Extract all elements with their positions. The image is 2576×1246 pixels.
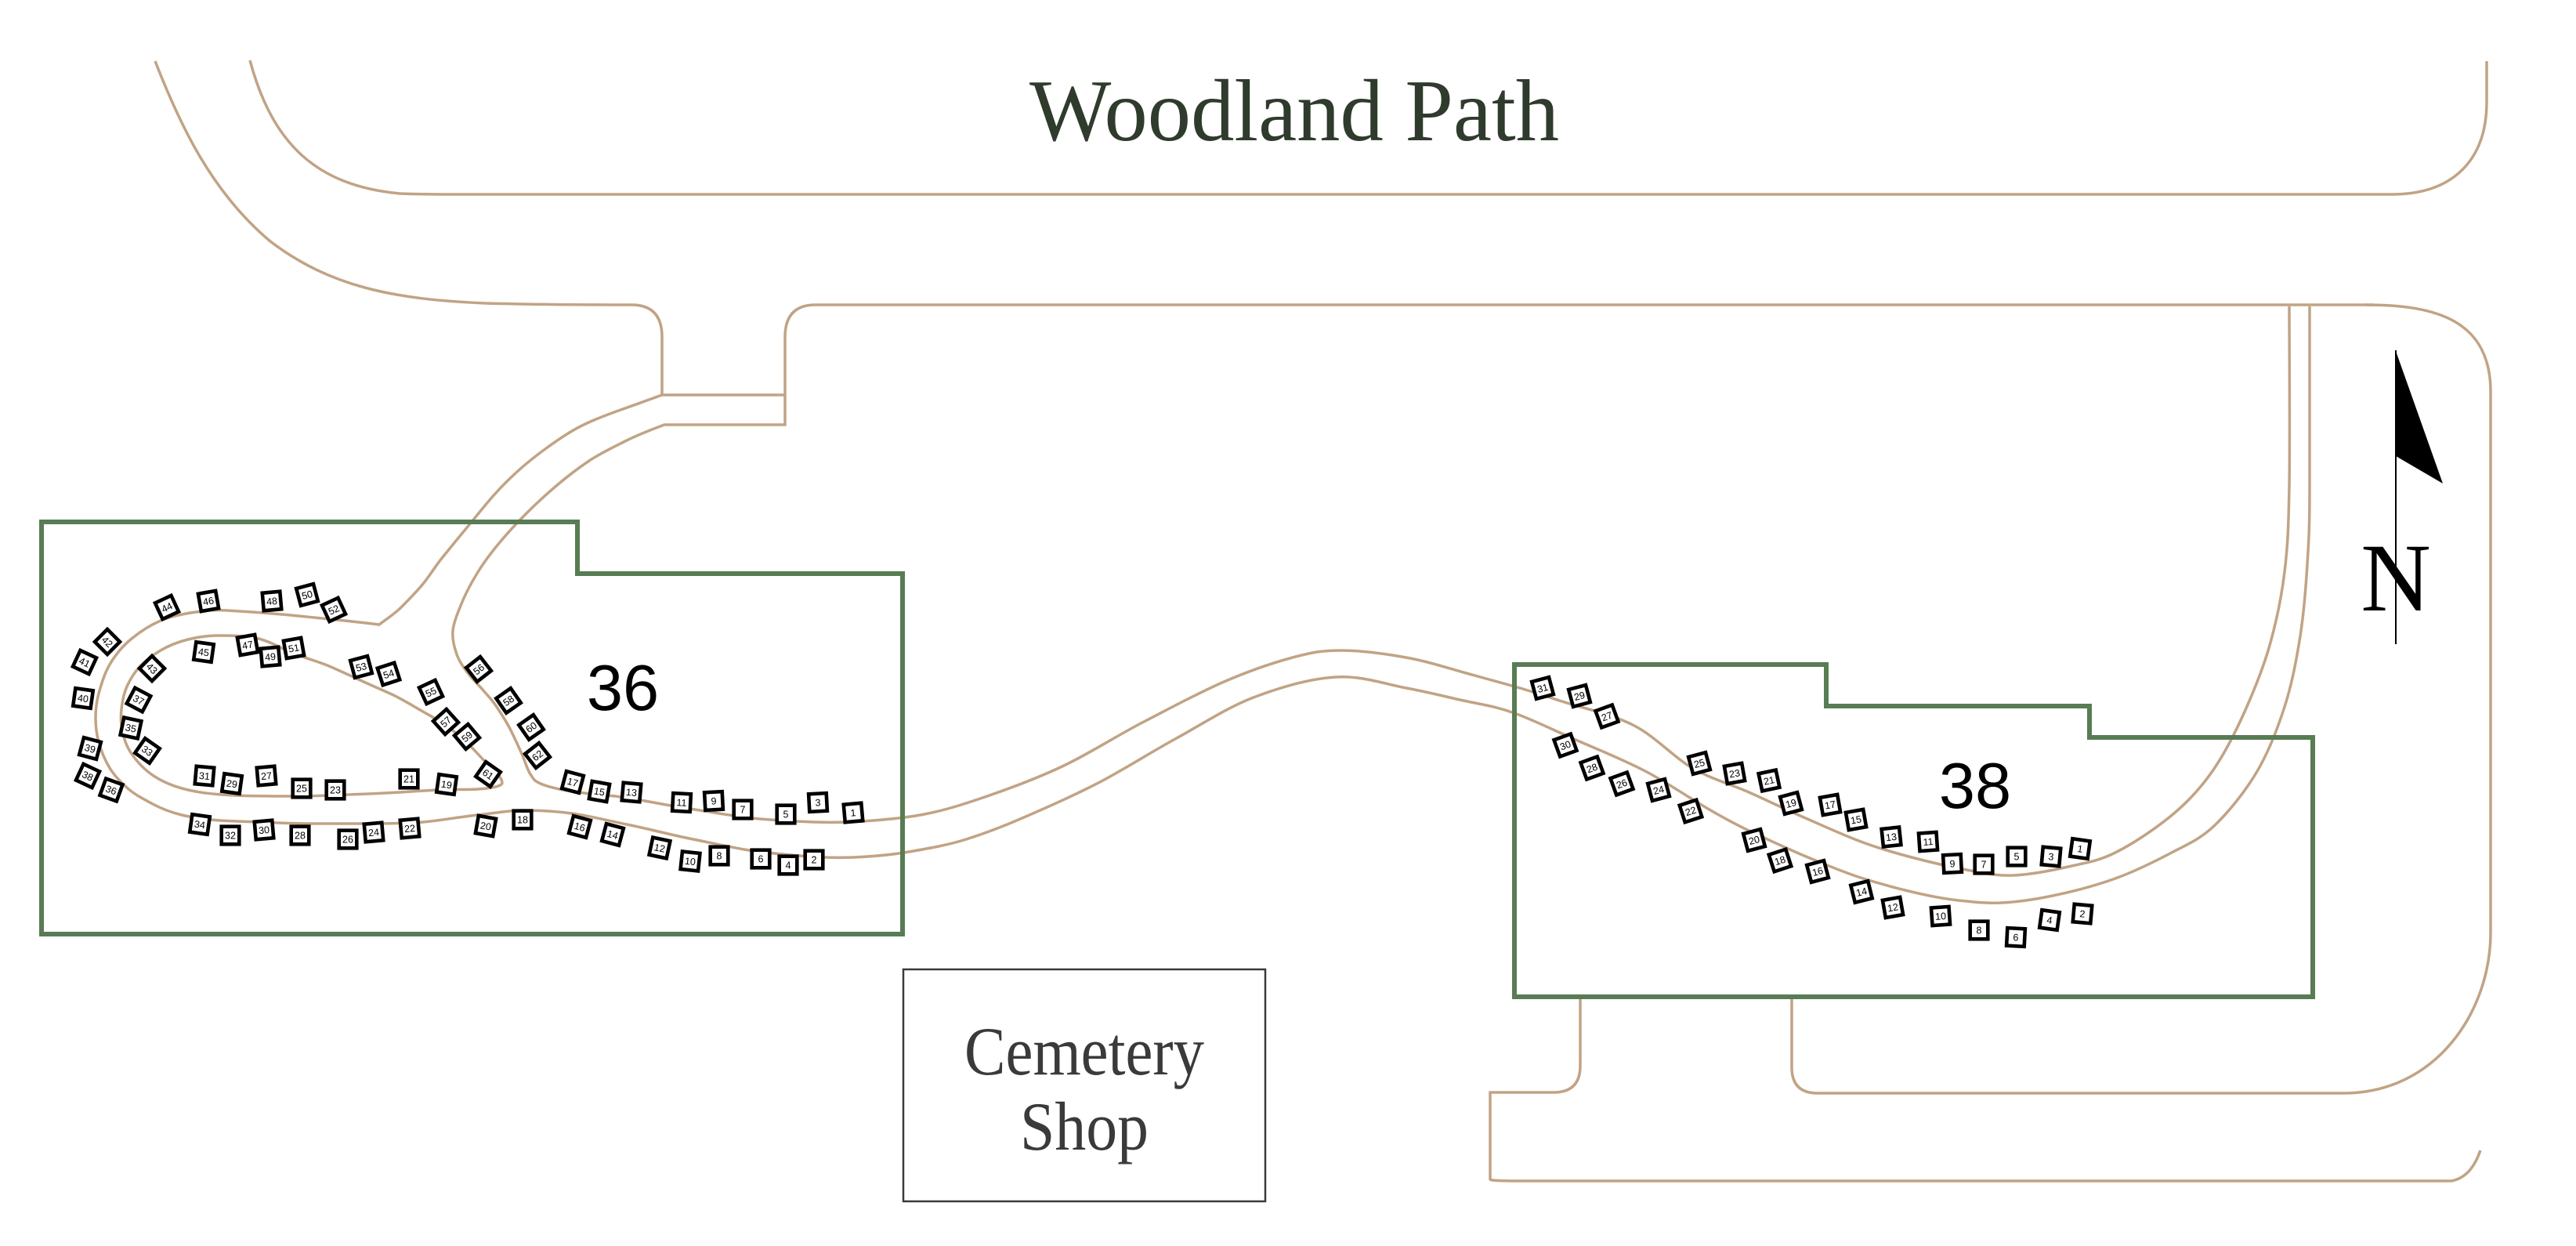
svg-text:2: 2 xyxy=(812,855,817,866)
svg-text:4: 4 xyxy=(786,860,791,871)
svg-text:31: 31 xyxy=(198,770,210,782)
svg-text:12: 12 xyxy=(653,842,667,855)
svg-text:7: 7 xyxy=(740,805,746,816)
svg-text:8: 8 xyxy=(717,851,722,862)
svg-text:Shop: Shop xyxy=(1020,1089,1149,1165)
svg-text:Woodland Path: Woodland Path xyxy=(1029,63,1559,160)
svg-text:49: 49 xyxy=(265,651,277,663)
svg-text:13: 13 xyxy=(625,787,637,799)
svg-text:3: 3 xyxy=(2048,851,2054,863)
svg-text:9: 9 xyxy=(711,795,717,806)
svg-text:28: 28 xyxy=(295,831,306,842)
svg-text:21: 21 xyxy=(1763,774,1776,788)
svg-text:Cemetery: Cemetery xyxy=(964,1014,1204,1090)
svg-text:45: 45 xyxy=(197,647,210,659)
svg-text:36: 36 xyxy=(587,651,659,724)
svg-text:26: 26 xyxy=(342,835,353,846)
svg-text:11: 11 xyxy=(1923,836,1934,848)
svg-text:12: 12 xyxy=(1887,901,1899,914)
svg-text:46: 46 xyxy=(202,595,215,607)
svg-text:23: 23 xyxy=(330,785,341,796)
svg-text:10: 10 xyxy=(684,856,696,867)
svg-text:5: 5 xyxy=(2014,852,2020,863)
svg-text:51: 51 xyxy=(288,642,300,654)
svg-text:48: 48 xyxy=(266,596,278,607)
svg-text:32: 32 xyxy=(225,831,236,842)
svg-text:6: 6 xyxy=(758,854,764,865)
svg-text:23: 23 xyxy=(1728,767,1741,780)
svg-text:15: 15 xyxy=(1850,813,1862,826)
svg-text:30: 30 xyxy=(259,824,270,836)
svg-text:25: 25 xyxy=(296,784,307,795)
svg-text:1: 1 xyxy=(850,807,856,819)
svg-text:18: 18 xyxy=(517,815,528,826)
svg-text:29: 29 xyxy=(226,778,238,791)
svg-text:N: N xyxy=(2361,524,2431,632)
svg-text:20: 20 xyxy=(479,820,492,832)
svg-text:3: 3 xyxy=(815,797,821,808)
svg-text:47: 47 xyxy=(241,639,254,651)
svg-text:22: 22 xyxy=(404,823,416,835)
svg-text:40: 40 xyxy=(77,693,89,705)
svg-text:15: 15 xyxy=(593,785,606,798)
svg-text:34: 34 xyxy=(194,819,206,831)
svg-text:8: 8 xyxy=(1977,925,1982,936)
svg-text:38: 38 xyxy=(1939,749,2011,822)
svg-text:11: 11 xyxy=(676,797,687,809)
svg-text:5: 5 xyxy=(783,810,789,820)
svg-text:27: 27 xyxy=(261,770,273,782)
svg-text:2: 2 xyxy=(2079,908,2086,920)
svg-text:10: 10 xyxy=(1935,911,1947,922)
svg-text:17: 17 xyxy=(1824,799,1836,811)
svg-text:13: 13 xyxy=(1885,831,1897,843)
svg-text:19: 19 xyxy=(440,779,453,791)
svg-text:9: 9 xyxy=(1949,858,1956,869)
svg-text:35: 35 xyxy=(125,722,138,735)
svg-text:7: 7 xyxy=(1981,860,1987,871)
svg-text:6: 6 xyxy=(2013,932,2019,943)
svg-text:24: 24 xyxy=(368,827,380,839)
svg-text:21: 21 xyxy=(403,774,414,785)
